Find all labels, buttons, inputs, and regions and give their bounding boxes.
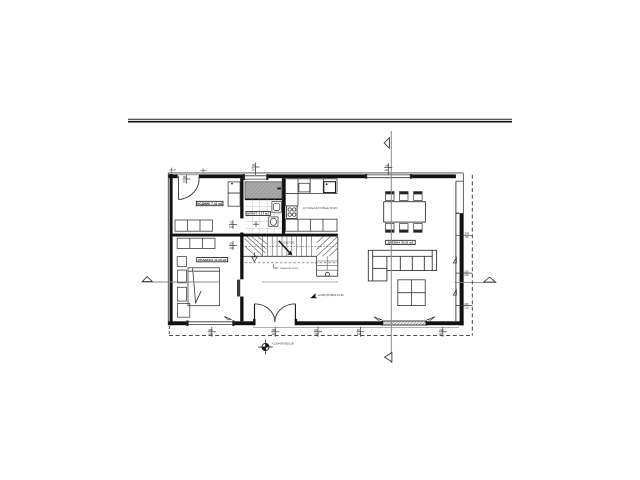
svg-text:КУХИЊА/КУХИЊЕ БОКС: КУХИЊА/КУХИЊЕ БОКС — [303, 206, 337, 210]
svg-text:150: 150 — [464, 302, 469, 306]
svg-text:180: 180 — [208, 328, 213, 332]
svg-text:СТЕ 16х17/29: СТЕ 16х17/29 — [277, 241, 295, 245]
svg-text:240: 240 — [314, 332, 319, 336]
svg-text:210: 210 — [229, 225, 234, 229]
svg-text:240: 240 — [439, 328, 444, 332]
svg-text:210: 210 — [252, 167, 257, 171]
svg-text:КУПАТ. 4.17 м2: КУПАТ. 4.17 м2 — [247, 212, 269, 216]
svg-text:120: 120 — [208, 332, 213, 336]
svg-text:240: 240 — [385, 164, 390, 168]
svg-text:сведениј патос: сведениј патос — [280, 266, 299, 270]
svg-text:240: 240 — [357, 332, 362, 336]
svg-text:180: 180 — [272, 328, 277, 332]
svg-text:+1.50=(76.00)/2.05: +1.50=(76.00)/2.05 — [272, 341, 295, 345]
svg-text:120: 120 — [384, 168, 389, 172]
svg-text:150: 150 — [464, 269, 469, 273]
svg-text:210: 210 — [183, 179, 188, 183]
svg-text:СПАВАЋА 11.26 м2: СПАВАЋА 11.26 м2 — [198, 258, 227, 262]
svg-text:-20: -20 — [465, 235, 469, 239]
svg-text:208: 208 — [465, 232, 470, 236]
svg-text:210: 210 — [229, 246, 234, 250]
svg-text:210: 210 — [464, 305, 469, 309]
svg-text:210: 210 — [464, 273, 469, 277]
svg-text:ХОДНИК 7.41 м2: ХОДНИК 7.41 м2 — [197, 202, 223, 206]
svg-text:+0.00=(75.50)/1.21.20: +0.00=(75.50)/1.21.20 — [318, 293, 344, 297]
svg-text:220: 220 — [272, 332, 277, 336]
